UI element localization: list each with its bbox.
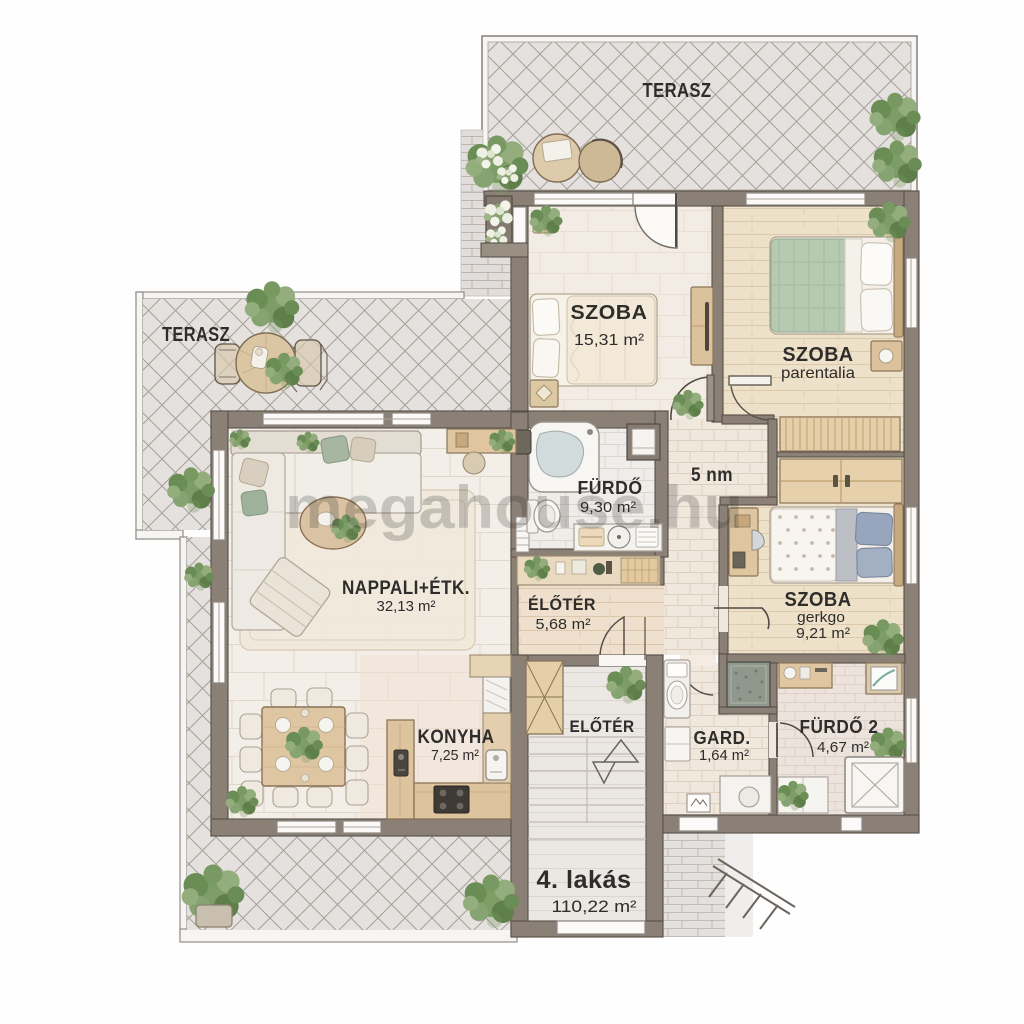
svg-text:4. lakás: 4. lakás [537,866,632,894]
svg-text:TERASZ: TERASZ [643,80,712,102]
svg-text:parentalia: parentalia [781,365,855,382]
svg-text:TERASZ: TERASZ [162,324,230,346]
svg-text:ELŐTÉR: ELŐTÉR [570,717,635,736]
svg-text:gerkgo: gerkgo [797,609,845,626]
svg-text:megahouse.hu: megahouse.hu [285,474,743,541]
svg-text:5,68 m²: 5,68 m² [536,616,591,633]
svg-text:GARD.: GARD. [694,728,751,748]
svg-text:SZOBA: SZOBA [785,589,852,611]
svg-text:SZOBA: SZOBA [783,344,854,366]
svg-text:9,21 m²: 9,21 m² [796,625,850,642]
svg-text:1,64 m²: 1,64 m² [699,747,749,764]
svg-text:110,22 m²: 110,22 m² [552,897,637,916]
svg-text:KONYHA: KONYHA [418,727,495,748]
svg-text:15,31 m²: 15,31 m² [574,332,645,349]
svg-text:4,67 m²: 4,67 m² [817,739,869,756]
svg-text:ÉLŐTÉR: ÉLŐTÉR [528,595,596,614]
svg-text:NAPPALI+ÉTK.: NAPPALI+ÉTK. [342,577,470,599]
svg-text:32,13 m²: 32,13 m² [377,598,436,615]
svg-text:7,25 m²: 7,25 m² [431,747,479,764]
svg-text:FÜRDŐ 2: FÜRDŐ 2 [800,716,879,737]
svg-text:SZOBA: SZOBA [571,302,648,324]
